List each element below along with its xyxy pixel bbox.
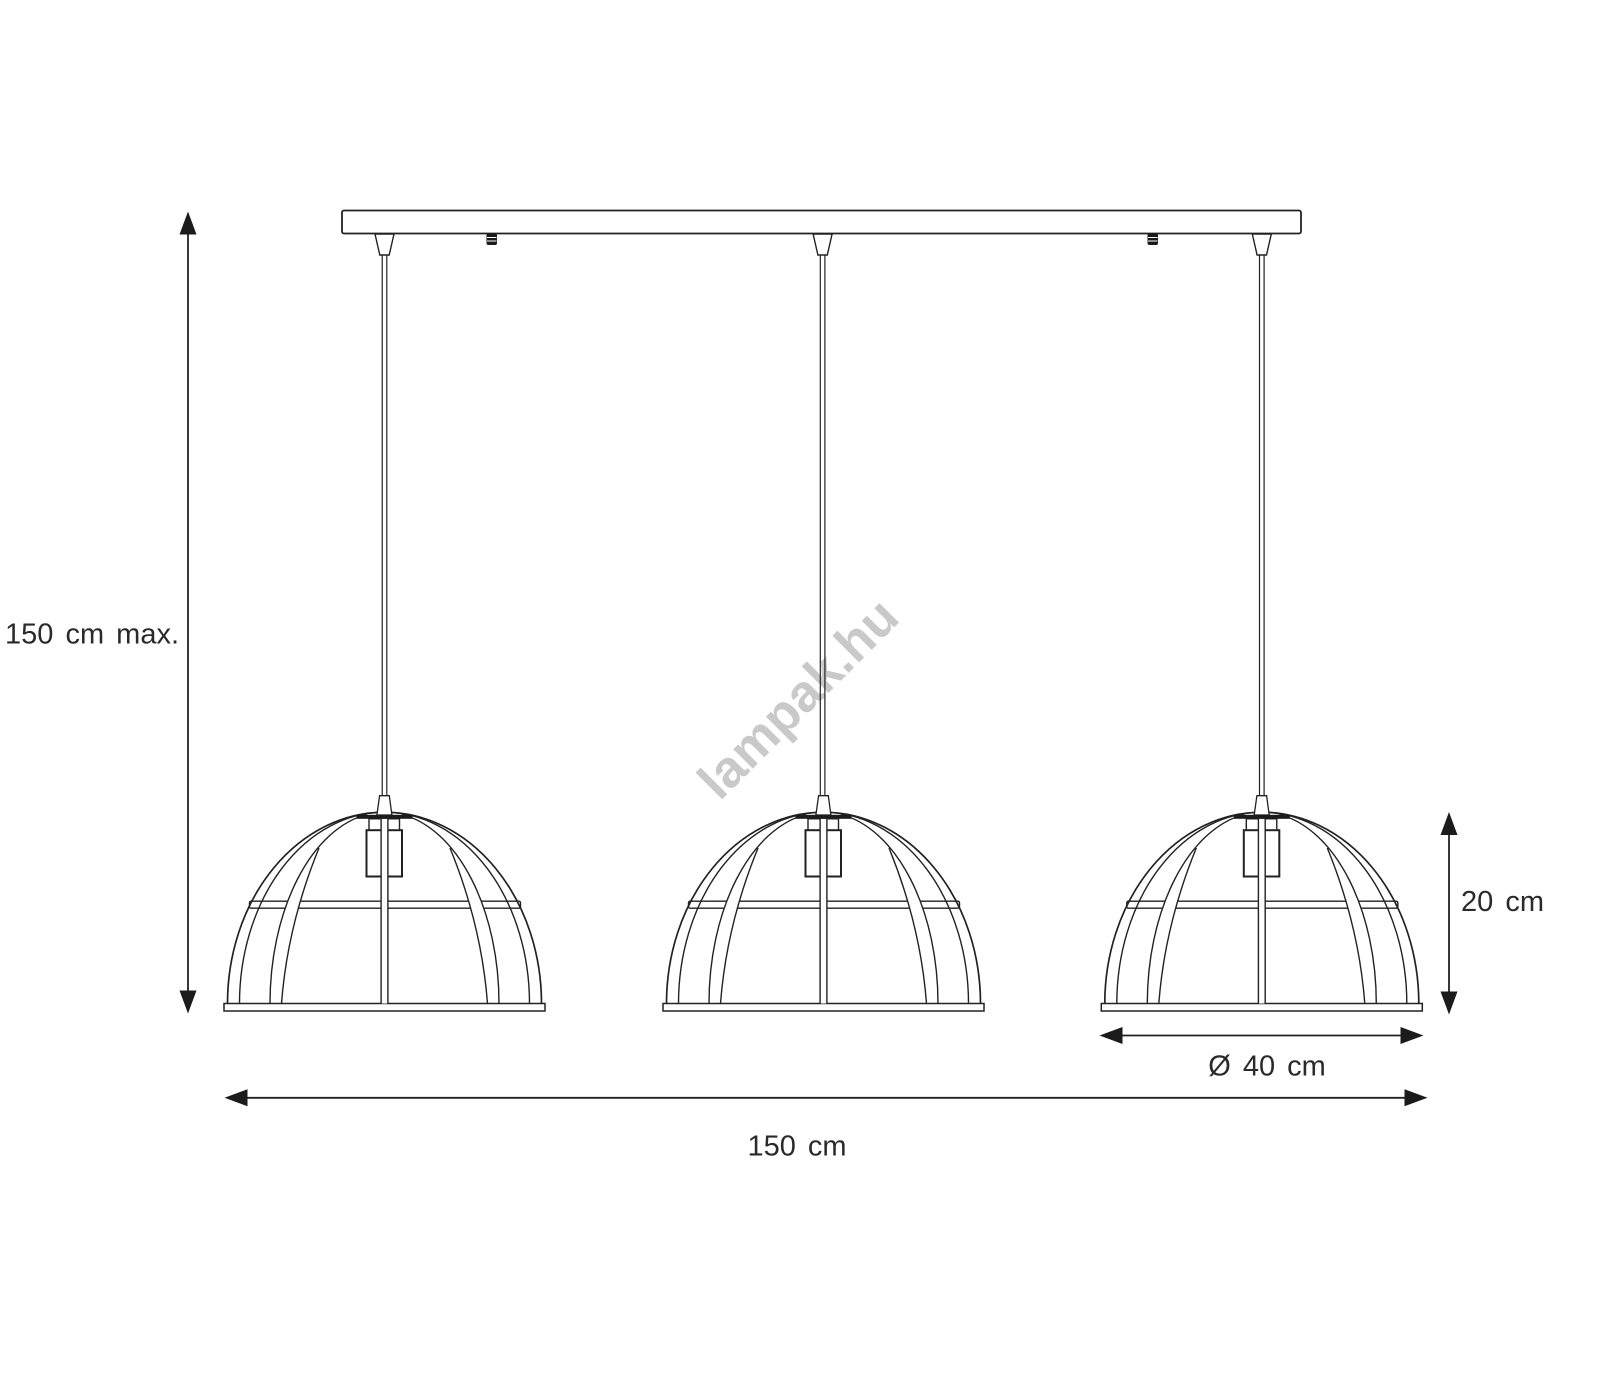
svg-text:150 cm: 150 cm xyxy=(747,1131,846,1163)
svg-text:Ø 40 cm: Ø 40 cm xyxy=(1208,1051,1326,1083)
svg-text:20 cm: 20 cm xyxy=(1461,886,1544,918)
svg-text:150 cm max.: 150 cm max. xyxy=(5,619,179,651)
